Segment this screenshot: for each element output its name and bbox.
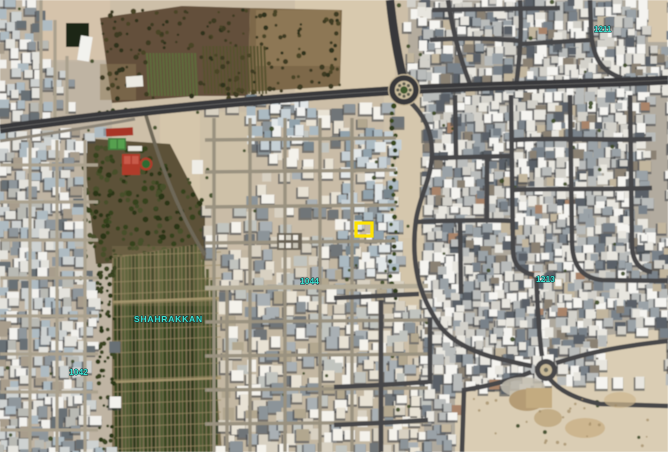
svg-text:1211: 1211 [594,25,612,34]
svg-text:1213: 1213 [536,274,555,284]
svg-text:1042: 1042 [69,367,88,377]
svg-text:1044: 1044 [300,276,319,286]
svg-text:SHAHRAKKAN: SHAHRAKKAN [134,314,203,324]
